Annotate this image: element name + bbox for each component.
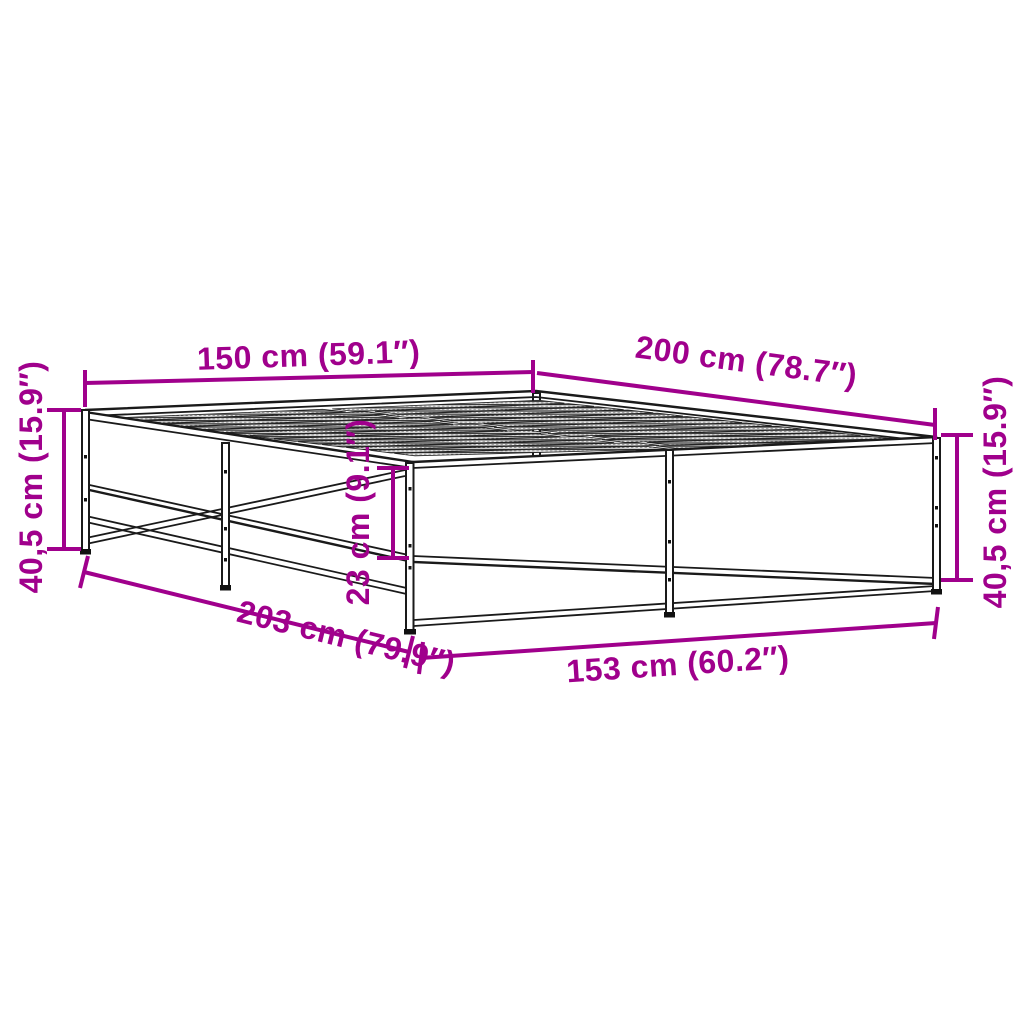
- left-corner-leg: [80, 410, 91, 555]
- near-corner-leg: [404, 463, 416, 635]
- right-corner-leg: [931, 438, 942, 595]
- bed-frame-drawing: [80, 391, 942, 635]
- diagram-canvas: 150 cm (59.1″) 200 cm (78.7″) 40,5 cm (1…: [0, 0, 1024, 1024]
- front-stretcher-rail: [414, 586, 935, 626]
- front-side-rail: [413, 437, 936, 584]
- front-middle-leg: [664, 450, 675, 618]
- dimension-right-height: 40,5 cm (15.9″): [941, 376, 1013, 609]
- dimension-label-top-width: 150 cm (59.1″): [196, 333, 420, 377]
- left-middle-leg: [220, 443, 231, 591]
- dimension-bottom-width: 153 cm (60.2″): [419, 607, 938, 689]
- dimension-left-height: 40,5 cm (15.9″): [13, 361, 81, 594]
- dimension-label-top-length: 200 cm (78.7″): [633, 329, 859, 394]
- dimension-label-left-height: 40,5 cm (15.9″): [13, 361, 49, 594]
- dimension-label-right-height: 40,5 cm (15.9″): [977, 376, 1013, 609]
- dimension-bottom-length: 203 cm (79.9″): [80, 556, 459, 681]
- dimension-label-rail-height: 23 cm (9.1″): [340, 419, 376, 606]
- bed-frame-dimension-diagram: 150 cm (59.1″) 200 cm (78.7″) 40,5 cm (1…: [0, 0, 1024, 1024]
- dimension-top-width: 150 cm (59.1″): [85, 333, 533, 407]
